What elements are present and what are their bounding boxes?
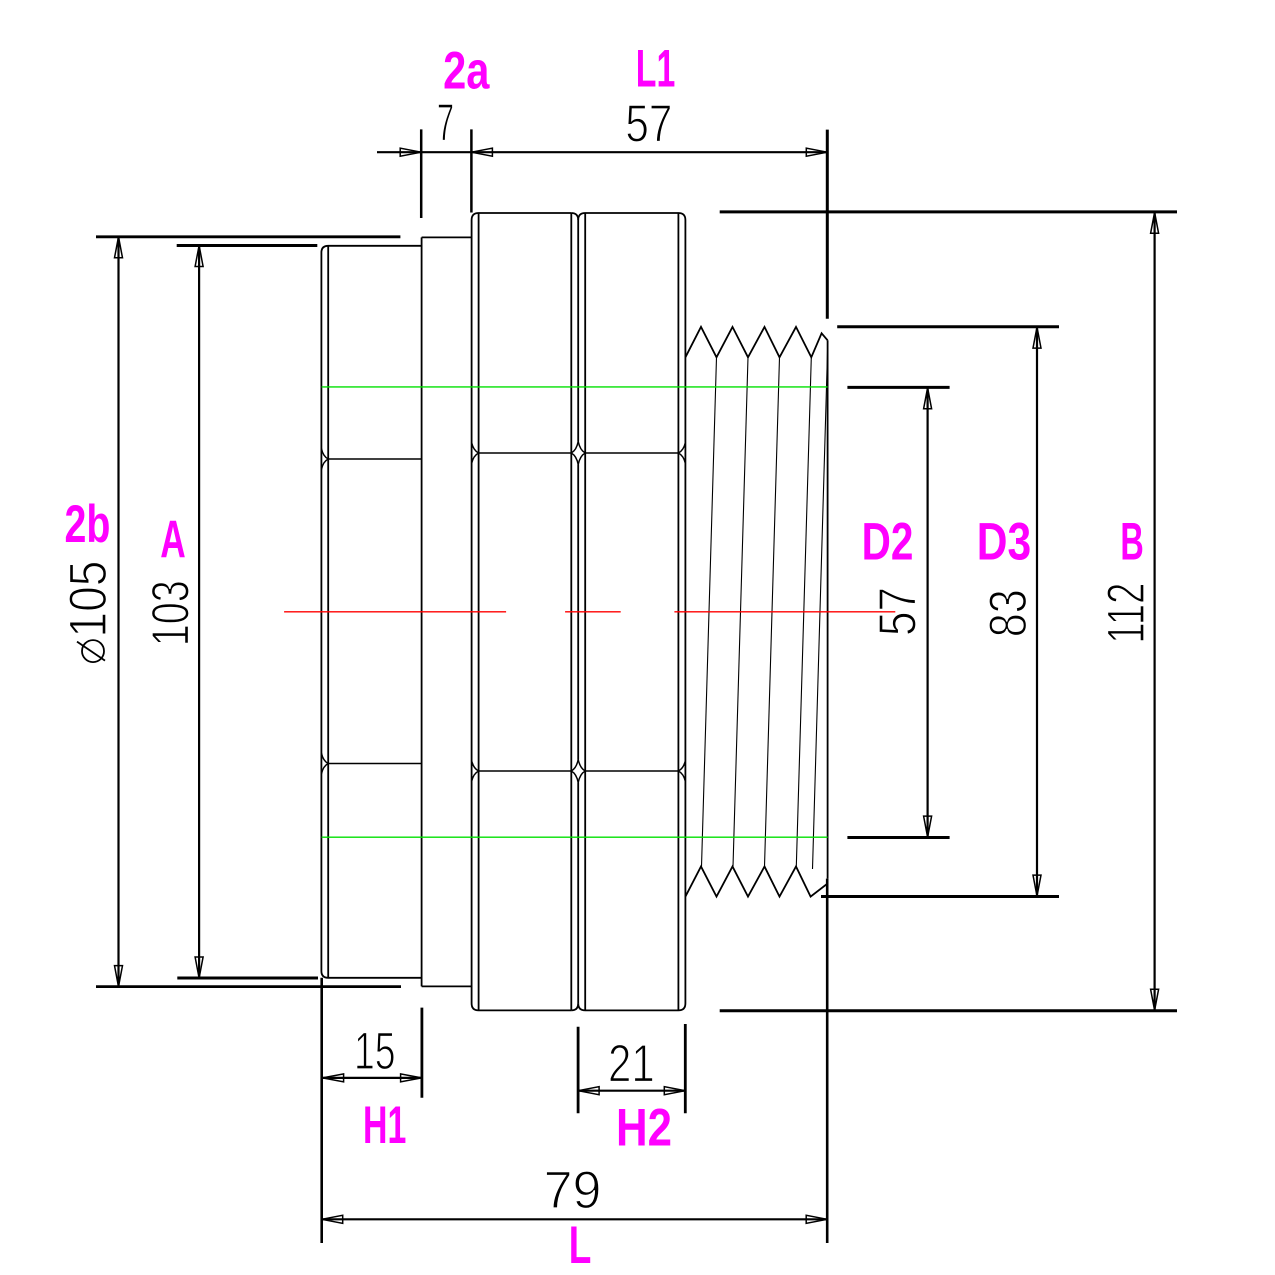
svg-text:B: B: [1120, 513, 1143, 572]
svg-text:H2: H2: [616, 1098, 672, 1157]
svg-text:2b: 2b: [65, 495, 111, 554]
svg-text:103: 103: [142, 580, 201, 646]
svg-text:105: 105: [59, 561, 118, 638]
svg-text:112: 112: [1097, 583, 1156, 644]
svg-text:21: 21: [608, 1034, 655, 1093]
svg-text:79: 79: [544, 1161, 602, 1220]
svg-text:D2: D2: [862, 513, 914, 572]
svg-text:7: 7: [437, 93, 454, 152]
svg-text:D3: D3: [977, 513, 1031, 572]
svg-text:L: L: [569, 1216, 592, 1275]
svg-text:83: 83: [979, 589, 1038, 637]
svg-text:57: 57: [625, 95, 672, 154]
svg-text:2a: 2a: [443, 42, 490, 101]
svg-text:H1: H1: [363, 1096, 406, 1155]
svg-text:15: 15: [354, 1022, 396, 1081]
svg-text:A: A: [160, 511, 186, 570]
svg-text:L1: L1: [636, 40, 676, 99]
svg-text:57: 57: [869, 587, 928, 636]
